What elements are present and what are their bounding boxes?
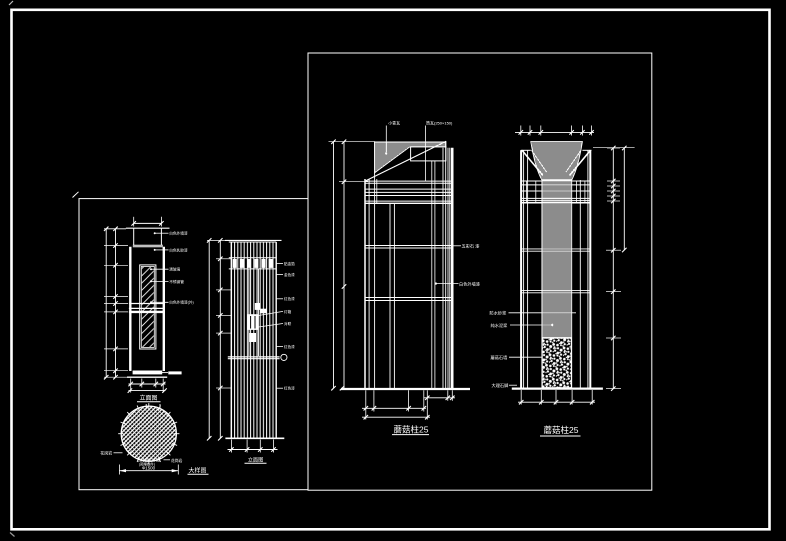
svg-text:金色漆: 金色漆 — [284, 272, 295, 277]
svg-text:蘑菇柱25: 蘑菇柱25 — [394, 424, 429, 434]
svg-text:花岗岩: 花岗岩 — [171, 458, 183, 463]
svg-text:白色外墙漆: 白色外墙漆 — [169, 231, 188, 236]
svg-text:小青瓦: 小青瓦 — [388, 119, 400, 125]
svg-text:Ф1500: Ф1500 — [142, 465, 156, 470]
svg-text:石材拼花详图: 石材拼花详图 — [137, 457, 160, 462]
svg-text:大理石脚: 大理石脚 — [492, 382, 509, 389]
svg-text:立面图: 立面图 — [248, 455, 264, 463]
svg-text:红色漆: 红色漆 — [284, 386, 295, 391]
svg-text:白色乳胶漆: 白色乳胶漆 — [169, 247, 188, 252]
svg-text:对联: 对联 — [284, 321, 292, 326]
svg-text:大样图: 大样图 — [188, 466, 206, 474]
svg-text:立面图: 立面图 — [139, 394, 157, 402]
svg-text:白色外墙漆: 白色外墙漆 — [459, 280, 480, 287]
svg-text:贴金箔: 贴金箔 — [284, 261, 295, 266]
svg-text:蘑菇石墙: 蘑菇石墙 — [491, 354, 508, 361]
svg-text:不锈钢管: 不锈钢管 — [169, 279, 184, 284]
svg-text:灯箱: 灯箱 — [284, 309, 292, 314]
svg-text:白色外墙漆(外): 白色外墙漆(外) — [169, 300, 194, 305]
svg-text:清玻璃: 清玻璃 — [169, 267, 180, 272]
svg-text:纯水泥浆: 纯水泥浆 — [491, 322, 509, 329]
svg-text:五彩石 漆: 五彩石 漆 — [462, 243, 480, 250]
svg-text:花岗岩: 花岗岩 — [100, 450, 112, 456]
svg-text:蘑菇柱25: 蘑菇柱25 — [544, 425, 579, 435]
svg-text:红色漆: 红色漆 — [284, 296, 295, 301]
svg-text:红色漆: 红色漆 — [284, 344, 295, 349]
svg-text:筒瓦(250×150): 筒瓦(250×150) — [426, 119, 453, 125]
svg-text:防水砂浆: 防水砂浆 — [490, 310, 508, 317]
